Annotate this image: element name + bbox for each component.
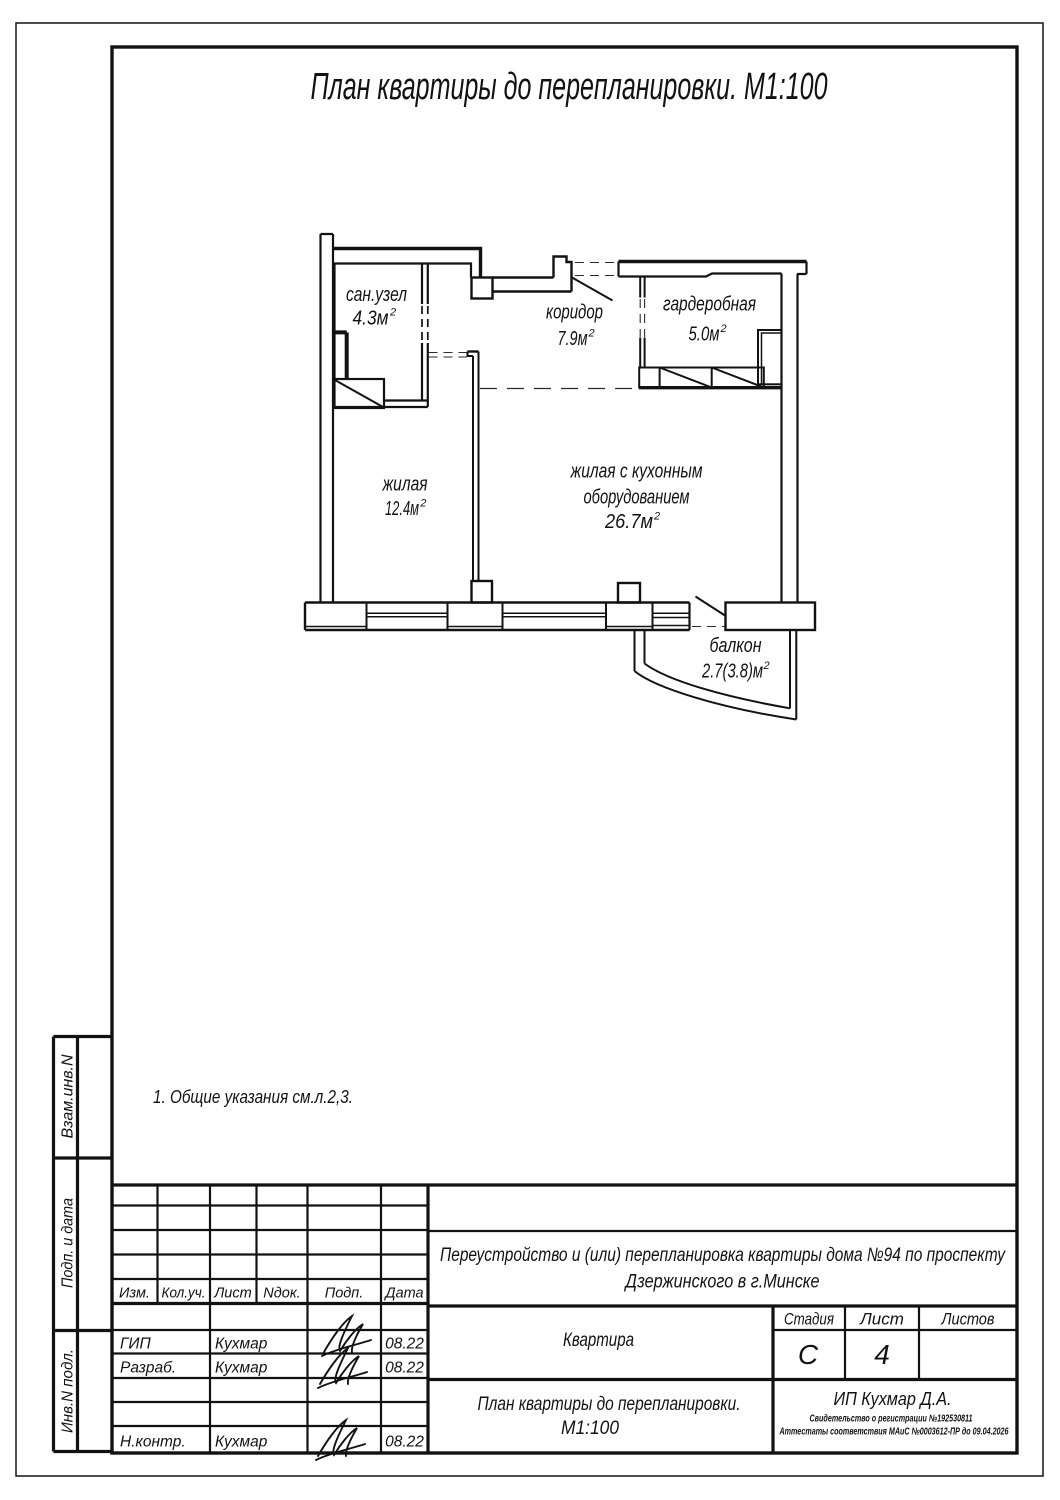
svg-text:5.0м: 5.0м [689,323,720,346]
svg-text:Н.контр.: Н.контр. [120,1434,186,1451]
svg-text:ГИП: ГИП [120,1336,152,1353]
svg-text:08.22: 08.22 [385,1336,424,1353]
svg-text:Разраб.: Разраб. [120,1360,176,1377]
svg-text:Стадия: Стадия [784,1310,834,1329]
svg-text:жилая с кухонным: жилая с кухонным [570,460,703,483]
svg-text:2: 2 [588,328,595,340]
svg-text:жилая: жилая [382,473,428,496]
svg-text:2: 2 [653,511,660,523]
svg-text:коридор: коридор [546,301,603,324]
svg-text:Nдок.: Nдок. [263,1286,300,1302]
svg-text:балкон: балкон [710,634,762,657]
svg-text:ИП Кухмар Д.А.: ИП Кухмар Д.А. [834,1388,952,1409]
svg-text:4: 4 [874,1339,890,1370]
svg-text:С: С [798,1339,819,1370]
svg-text:08.22: 08.22 [385,1360,424,1377]
svg-text:Кол.уч.: Кол.уч. [162,1286,206,1302]
svg-text:Взам.инв.N: Взам.инв.N [60,1054,77,1139]
svg-text:сан.узел: сан.узел [346,283,407,306]
svg-text:2.7(3.8)м: 2.7(3.8)м [701,660,763,683]
svg-text:Подп.: Подп. [325,1286,364,1302]
svg-text:Дата: Дата [383,1286,423,1302]
svg-text:2: 2 [720,323,727,335]
svg-text:План квартиры до перепланировк: План квартиры до перепланировки. [478,1393,741,1415]
svg-text:Квартира: Квартира [563,1329,634,1351]
svg-text:Инв.N подл.: Инв.N подл. [60,1349,77,1433]
svg-text:Подп. и дата: Подп. и дата [60,1198,77,1288]
svg-text:26.7м: 26.7м [604,510,653,533]
svg-text:2: 2 [389,307,396,319]
svg-text:2: 2 [763,660,770,672]
svg-text:1. Общие указания см.л.2,3.: 1. Общие указания см.л.2,3. [153,1087,353,1107]
svg-text:08.22: 08.22 [385,1434,424,1451]
svg-text:Лист: Лист [213,1286,251,1302]
svg-text:гардеробная: гардеробная [663,293,756,316]
svg-text:Изм.: Изм. [119,1286,150,1302]
svg-text:оборудованием: оборудованием [584,486,690,509]
svg-text:М1:100: М1:100 [561,1417,619,1439]
svg-text:Листов: Листов [941,1310,995,1329]
svg-text:12.4м: 12.4м [385,497,419,520]
svg-text:Кухмар: Кухмар [215,1434,268,1451]
svg-text:Переустройство и (или) перепла: Переустройство и (или) перепланировка кв… [440,1244,1006,1266]
svg-text:Свидетельство о регистрации №1: Свидетельство о регистрации №192530811 [810,1414,973,1425]
svg-text:Кухмар: Кухмар [215,1360,268,1377]
svg-text:Лист: Лист [859,1310,904,1329]
svg-text:4.3м: 4.3м [353,307,389,330]
svg-text:Кухмар: Кухмар [215,1336,268,1353]
svg-text:7.9м: 7.9м [558,327,588,350]
svg-text:Дзержинского в г.Минске: Дзержинского в г.Минске [624,1271,820,1293]
svg-text:2: 2 [419,498,426,510]
svg-text:План квартиры до перепланировк: План квартиры до перепланировки. М1:100 [311,66,828,108]
svg-text:Аттестаты соответствия МАиС №0: Аттестаты соответствия МАиС №0003612-ПР … [779,1427,1009,1438]
